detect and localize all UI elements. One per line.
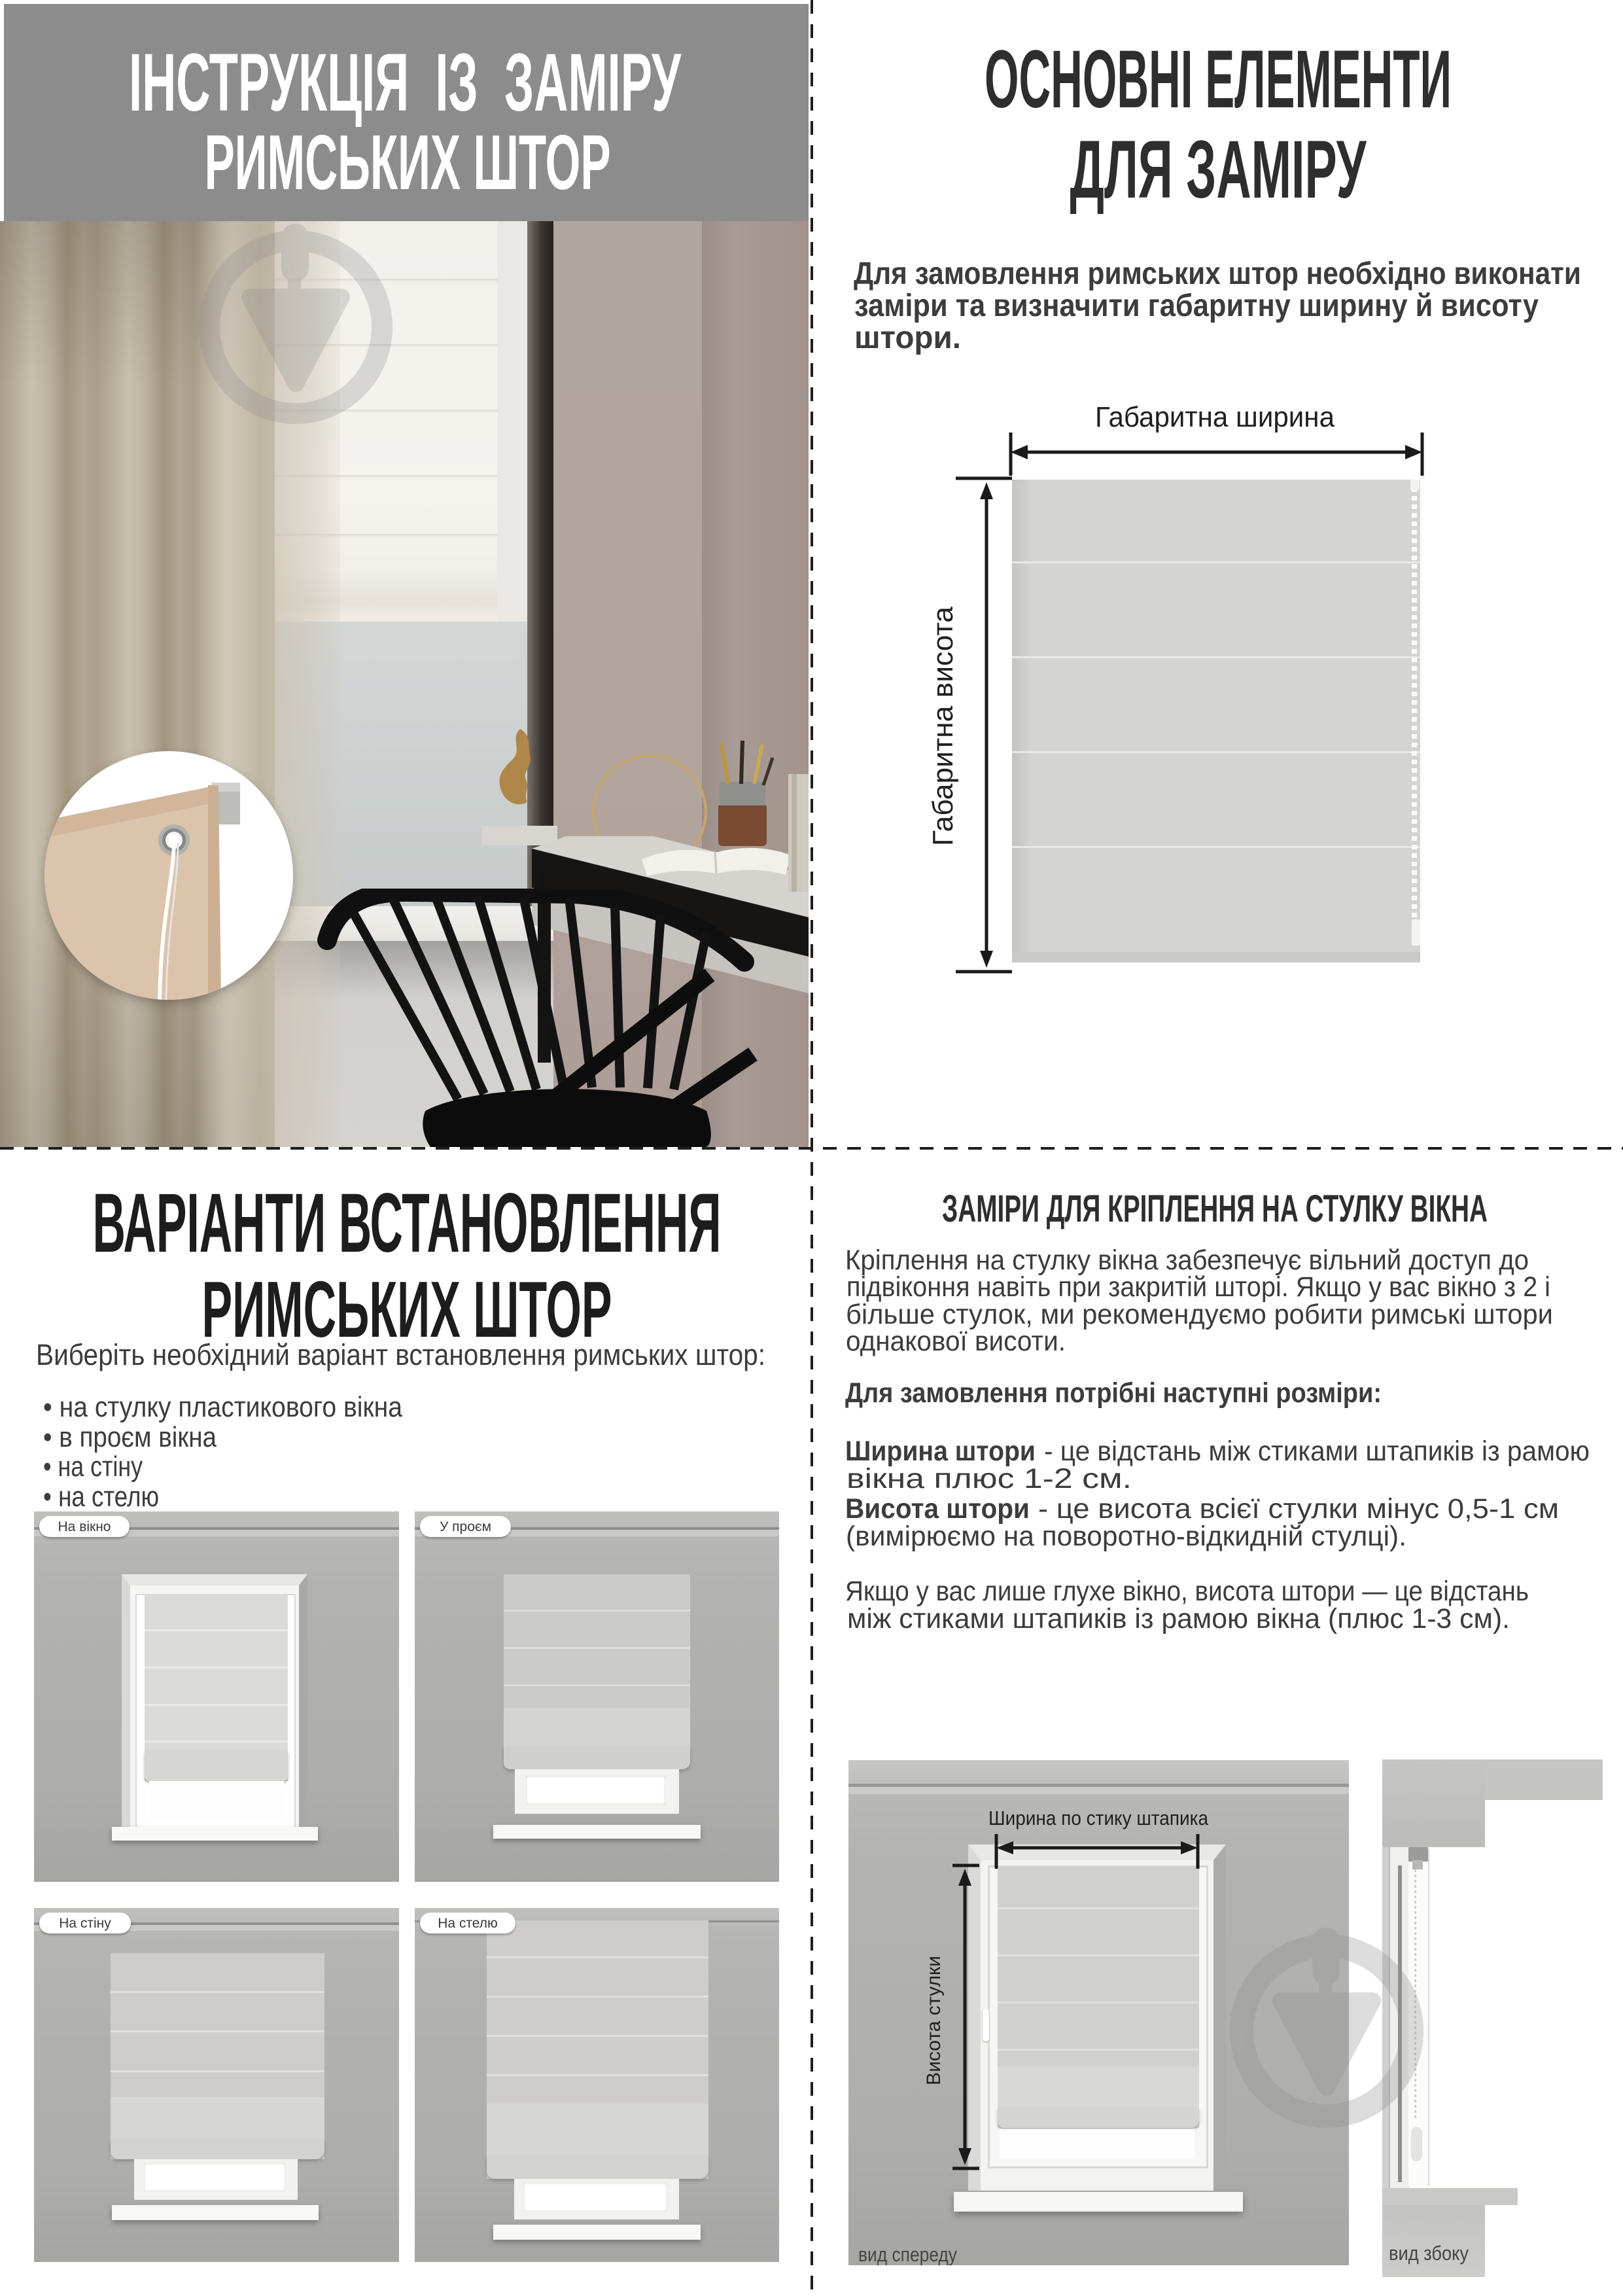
svg-text:Виберіть необхідний варіант вс: Виберіть необхідний варіант встановлення… xyxy=(36,1338,765,1371)
svg-text:ДЛЯ ЗАМІРУ: ДЛЯ ЗАМІРУ xyxy=(1070,124,1367,215)
svg-text:Для замовлення римських штор н: Для замовлення римських штор необхідно в… xyxy=(854,256,1581,291)
svg-text:(вимірюємо на поворотно-відкид: (вимірюємо на поворотно-відкидній стулці… xyxy=(846,1521,1406,1552)
svg-text:• на стелю: • на стелю xyxy=(43,1481,159,1513)
svg-text:Якщо у вас лише глухе вікно, в: Якщо у вас лише глухе вікно, висота штор… xyxy=(845,1576,1529,1607)
svg-text:• на стіну: • на стіну xyxy=(43,1451,143,1483)
svg-text:підвіконня навіть при закритій: підвіконня навіть при закритій шторі. Як… xyxy=(846,1271,1550,1303)
svg-text:- це висота всієї стулки мінус: - це висота всієї стулки мінус 0,5-1 см xyxy=(1038,1493,1559,1525)
svg-text:Ширина по стику штапика: Ширина по стику штапика xyxy=(988,1807,1209,1829)
svg-text:Висота стулки: Висота стулки xyxy=(923,1956,945,2085)
svg-text:• в проєм вікна: • в проєм вікна xyxy=(43,1421,217,1453)
svg-text:- це відстань між стиками штап: - це відстань між стиками штапиків із ра… xyxy=(1044,1436,1590,1467)
svg-text:Ширина штори: Ширина штори xyxy=(845,1436,1036,1467)
svg-text:ІНСТРУКЦІЯ ІЗ ЗАМІРУ: ІНСТРУКЦІЯ ІЗ ЗАМІРУ xyxy=(129,37,682,128)
svg-text:ЗАМІРИ ДЛЯ КРІПЛЕННЯ НА СТУЛКУ: ЗАМІРИ ДЛЯ КРІПЛЕННЯ НА СТУЛКУ ВІКНА xyxy=(942,1188,1488,1230)
svg-text:Для замовлення потрібні наступ: Для замовлення потрібні наступні розміри… xyxy=(845,1377,1382,1409)
svg-text:ОСНОВНІ ЕЛЕМЕНТИ: ОСНОВНІ ЕЛЕМЕНТИ xyxy=(985,34,1452,125)
svg-text:однакової висоти.: однакової висоти. xyxy=(846,1326,1066,1357)
svg-text:Габаритна висота: Габаритна висота xyxy=(927,606,959,846)
svg-text:вікна плюс 1-2 см.: вікна плюс 1-2 см. xyxy=(846,1463,1132,1494)
svg-text:штори.: штори. xyxy=(854,321,961,355)
svg-text:вид збоку: вид збоку xyxy=(1389,2242,1469,2265)
svg-text:заміри та визначити габаритну: заміри та визначити габаритну ширину й в… xyxy=(854,289,1539,323)
svg-text:• на стулку пластикового вікна: • на стулку пластикового вікна xyxy=(43,1392,402,1423)
svg-text:РИМСЬКИХ ШТОР: РИМСЬКИХ ШТОР xyxy=(205,119,611,206)
svg-text:Висота штори: Висота штори xyxy=(845,1493,1030,1525)
svg-text:між стиками штапиків із рамою: між стиками штапиків із рамою вікна (плю… xyxy=(847,1603,1510,1634)
svg-text:ВАРІАНТИ ВСТАНОВЛЕННЯ: ВАРІАНТИ ВСТАНОВЛЕННЯ xyxy=(93,1176,722,1270)
svg-text:вид спереду: вид спереду xyxy=(858,2243,957,2265)
